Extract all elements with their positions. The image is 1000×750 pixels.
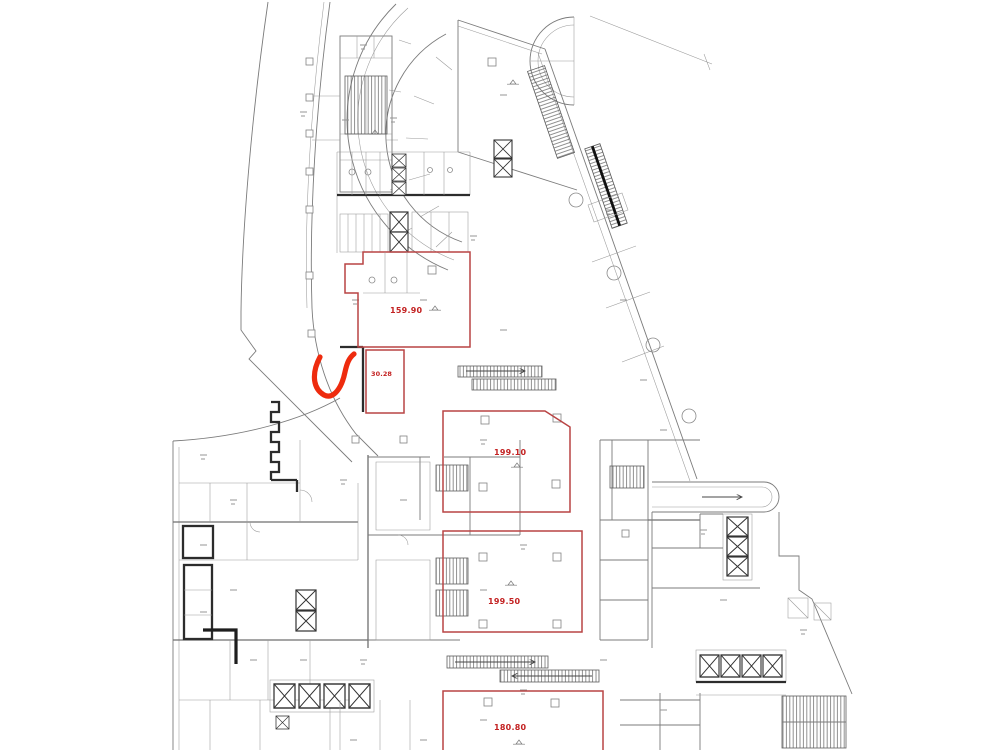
elevator-shaft	[763, 655, 782, 677]
building-outer-boundary	[173, 2, 712, 750]
room-area-label-199-10: 199.10	[494, 448, 527, 457]
elevator-shaft	[727, 517, 748, 536]
elevator-shaft	[276, 716, 289, 729]
room-outline-30-28	[366, 350, 404, 413]
elevator-shaft	[296, 590, 316, 610]
service-room	[183, 526, 213, 558]
elevator-shaft	[392, 154, 406, 167]
room-area-label-180-80: 180.80	[494, 723, 527, 732]
top-center-washroom-block	[337, 152, 470, 253]
elevator-shaft	[721, 655, 740, 677]
staircase	[436, 590, 468, 616]
staircase	[436, 465, 468, 491]
elevator-shaft	[742, 655, 761, 677]
thick-wall	[203, 630, 236, 664]
staircase	[436, 558, 468, 584]
elevator-shaft	[299, 684, 320, 708]
elevator-shaft	[296, 611, 316, 631]
shaft-room	[184, 565, 212, 639]
elevator-shaft	[390, 212, 408, 232]
elevator-shaft	[349, 684, 370, 708]
elevator-shaft	[324, 684, 345, 708]
elevator-shaft	[274, 684, 295, 708]
elevator-shaft	[727, 537, 748, 556]
room-outline-159-90	[345, 252, 470, 347]
room-area-label-30-28: 30.28	[371, 370, 392, 378]
elevator-shaft	[494, 159, 512, 177]
floor-plan-drawing: 159.90 30.28 199.10 199.50 180.80	[0, 0, 1000, 750]
upper-hall-and-diagonal-boundary	[369, 20, 697, 481]
room-outline-180-80	[443, 691, 603, 750]
room-area-label-199-50: 199.50	[488, 597, 521, 606]
elevator-shaft	[392, 168, 406, 181]
room-area-label-159-90: 159.90	[390, 306, 423, 315]
elevator-shaft	[700, 655, 719, 677]
structural-columns	[306, 58, 629, 744]
elevator-shaft	[727, 557, 748, 576]
elevator-shaft	[390, 232, 408, 252]
diagonal-escalator-upper	[494, 66, 627, 229]
elevator-shaft	[494, 140, 512, 158]
handwritten-checkmark	[314, 354, 354, 396]
crenellated-wall	[271, 402, 279, 480]
right-service-cluster	[652, 482, 852, 748]
atrium-ramp-arcs	[347, 4, 574, 270]
elevator-shaft	[392, 182, 406, 195]
mid-right-wedge-rooms	[569, 193, 700, 640]
room-outline-199-10	[443, 411, 570, 512]
staircase	[610, 466, 644, 488]
floor-plan-page: 159.90 30.28 199.10 199.50 180.80	[0, 0, 1000, 750]
